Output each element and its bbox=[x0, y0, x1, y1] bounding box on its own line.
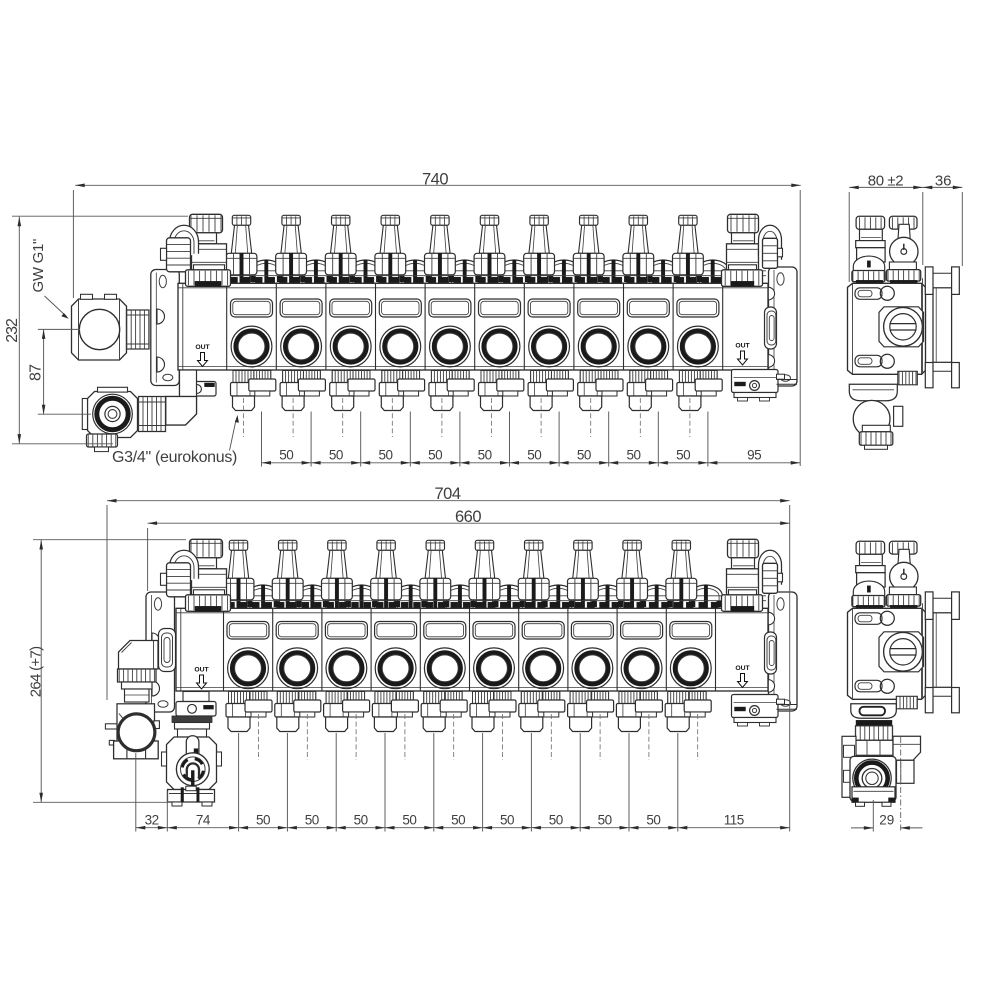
svg-text:36: 36 bbox=[935, 172, 952, 189]
svg-text:50: 50 bbox=[500, 812, 514, 827]
svg-text:OUT: OUT bbox=[735, 665, 750, 672]
svg-text:50: 50 bbox=[428, 448, 442, 463]
svg-text:50: 50 bbox=[354, 812, 368, 827]
svg-text:50: 50 bbox=[329, 448, 343, 463]
svg-text:74: 74 bbox=[196, 812, 211, 827]
svg-text:50: 50 bbox=[378, 448, 392, 463]
svg-text:80 ±2: 80 ±2 bbox=[868, 172, 903, 189]
svg-text:704: 704 bbox=[434, 485, 460, 503]
svg-text:115: 115 bbox=[724, 812, 744, 827]
svg-text:95: 95 bbox=[747, 448, 761, 463]
svg-text:50: 50 bbox=[279, 448, 293, 463]
svg-text:50: 50 bbox=[256, 812, 270, 827]
svg-text:87: 87 bbox=[28, 364, 45, 381]
svg-text:50: 50 bbox=[626, 448, 640, 463]
svg-text:264 (+7): 264 (+7) bbox=[27, 646, 44, 697]
svg-text:50: 50 bbox=[598, 812, 612, 827]
svg-text:660: 660 bbox=[455, 508, 481, 526]
svg-text:50: 50 bbox=[646, 812, 660, 827]
svg-text:G3/4" (eurokonus): G3/4" (eurokonus) bbox=[112, 449, 237, 466]
svg-text:OUT: OUT bbox=[735, 343, 750, 350]
svg-text:50: 50 bbox=[549, 812, 563, 827]
svg-text:OUT: OUT bbox=[195, 344, 210, 351]
svg-text:29: 29 bbox=[879, 812, 894, 827]
svg-text:GW G1": GW G1" bbox=[30, 239, 47, 293]
svg-text:32: 32 bbox=[145, 812, 159, 827]
svg-text:232: 232 bbox=[4, 318, 21, 343]
svg-text:50: 50 bbox=[305, 812, 319, 827]
svg-text:50: 50 bbox=[478, 448, 492, 463]
svg-text:OUT: OUT bbox=[194, 667, 209, 674]
svg-text:50: 50 bbox=[676, 448, 690, 463]
svg-text:50: 50 bbox=[451, 812, 465, 827]
svg-text:50: 50 bbox=[577, 448, 591, 463]
svg-text:50: 50 bbox=[527, 448, 541, 463]
svg-text:740: 740 bbox=[422, 171, 448, 189]
svg-text:50: 50 bbox=[402, 812, 416, 827]
